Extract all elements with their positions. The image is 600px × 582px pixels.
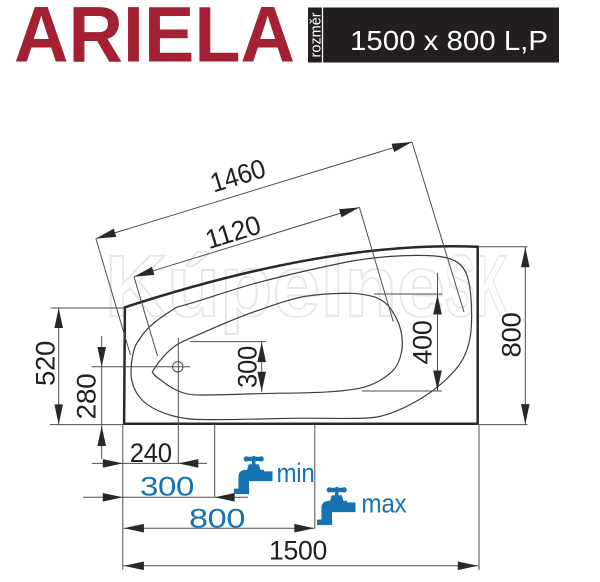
svg-text:min: min bbox=[277, 458, 315, 488]
svg-text:300: 300 bbox=[140, 472, 194, 502]
svg-text:400: 400 bbox=[408, 321, 438, 365]
svg-text:280: 280 bbox=[72, 374, 102, 420]
svg-text:Kúpelne: Kúpelne bbox=[105, 238, 445, 335]
svg-text:ARIELA: ARIELA bbox=[14, 0, 295, 79]
svg-text:800: 800 bbox=[189, 504, 245, 534]
svg-text:1460: 1460 bbox=[207, 153, 269, 198]
svg-text:520: 520 bbox=[31, 341, 61, 386]
svg-text:1500: 1500 bbox=[269, 536, 327, 566]
svg-text:max: max bbox=[361, 488, 407, 518]
svg-text:1500 x 800 L,P: 1500 x 800 L,P bbox=[350, 25, 548, 56]
svg-text:rozměr: rozměr bbox=[309, 12, 325, 57]
svg-text:300: 300 bbox=[232, 346, 262, 388]
svg-text:800: 800 bbox=[497, 313, 527, 358]
svg-text:240: 240 bbox=[130, 438, 172, 468]
